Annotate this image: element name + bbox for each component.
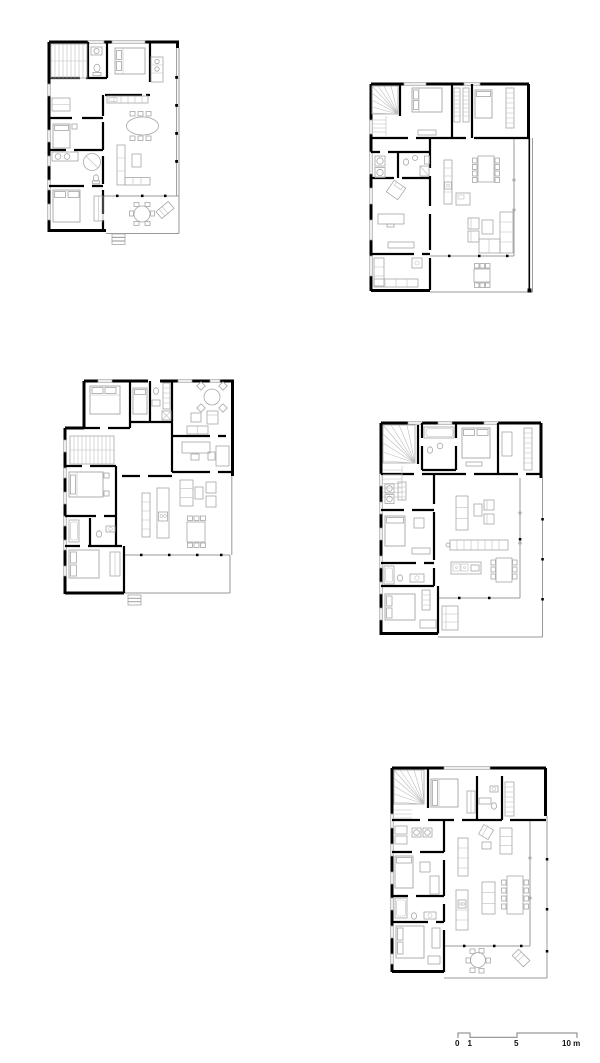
drawing-sheet: 0 1 5 10 m <box>0 0 600 1063</box>
closet-top-right <box>502 428 532 470</box>
floor-plan-bottom-right <box>378 758 560 986</box>
closet-top-right <box>505 782 514 816</box>
kitchen <box>456 838 468 930</box>
bathroom-top <box>424 427 454 453</box>
dining-table <box>502 876 529 914</box>
walls-interior <box>371 84 529 290</box>
office-room <box>187 382 227 434</box>
floor-plan-top-left <box>46 38 186 253</box>
lounge-chair <box>512 949 530 967</box>
bed-top-left <box>412 88 442 135</box>
sofa-group <box>117 145 150 185</box>
bed-bottom-left <box>53 190 103 222</box>
bath-row <box>69 520 115 542</box>
floor-plan-middle-right <box>378 418 544 644</box>
stairs <box>70 436 114 464</box>
bed-top <box>431 779 475 813</box>
terrace <box>466 949 530 974</box>
stairs <box>51 44 87 78</box>
glazing-and-terrace-edge <box>124 476 232 605</box>
scale-tick-10m: 10 m <box>562 1039 580 1048</box>
bathroom-fixtures <box>152 383 171 420</box>
bed-top-left <box>90 386 120 414</box>
living-sofa-group <box>180 480 216 507</box>
closet-middle <box>454 88 469 122</box>
bathroom-fixtures <box>403 156 429 177</box>
dining-table <box>187 516 206 548</box>
terrace-table <box>474 264 490 288</box>
scale-tick-1: 1 <box>468 1039 472 1048</box>
kitchen <box>446 540 508 574</box>
bed-middle-left <box>53 124 77 148</box>
glazing-and-terrace-edge <box>438 478 544 637</box>
corner-sofa-room <box>374 258 422 287</box>
bathroom-top <box>479 786 498 809</box>
study-room <box>378 180 414 248</box>
hall-shelf <box>52 98 70 111</box>
bed-top <box>462 428 490 466</box>
living-sofa-group <box>456 496 494 530</box>
bed-middle-left <box>385 516 430 554</box>
floor-plan-middle-left <box>60 376 237 612</box>
floor-plan-top-right <box>368 80 540 298</box>
stairs <box>394 770 424 818</box>
kitchen <box>444 160 470 205</box>
storage-room <box>395 826 432 844</box>
kitchen <box>142 488 169 538</box>
dining-table <box>127 112 159 141</box>
bathroom-fixtures <box>395 898 436 919</box>
stairs <box>372 86 398 136</box>
bed-bottom-left <box>385 590 436 628</box>
bed-top-right <box>115 48 145 74</box>
bed-bottom-left <box>396 926 440 964</box>
bathroom-fixtures <box>52 152 101 184</box>
bed-second <box>133 388 147 414</box>
bathroom-fixtures <box>384 566 424 584</box>
laundry <box>375 156 385 178</box>
dining-table <box>473 156 500 183</box>
lounge-chair <box>156 201 174 218</box>
scale-tick-5: 5 <box>514 1039 518 1048</box>
wc-fixtures <box>91 47 102 76</box>
study-desks <box>182 442 229 466</box>
bed-middle-left <box>69 472 109 497</box>
scale-tick-0: 0 <box>455 1039 459 1048</box>
terrace-sofa <box>442 606 458 630</box>
bed-bottom-left <box>69 550 120 578</box>
dining-table <box>491 558 517 582</box>
stairs <box>383 425 415 500</box>
bed-middle-left <box>395 856 439 894</box>
glazing-and-terrace-edge <box>444 816 548 978</box>
bed-top-right <box>475 88 514 128</box>
terrace <box>112 201 174 244</box>
scale-bar: 0 1 5 10 m <box>450 1026 585 1056</box>
living-sofa-group <box>468 212 513 253</box>
